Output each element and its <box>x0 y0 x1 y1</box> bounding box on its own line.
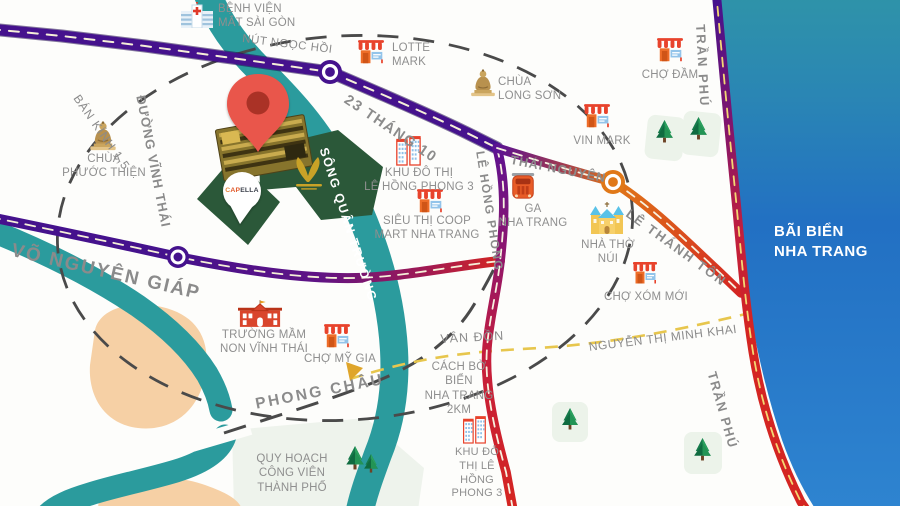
map-canvas <box>0 0 900 506</box>
market-icon <box>323 324 351 355</box>
road-van-don-dashed <box>350 313 750 379</box>
poi-label-cho-xom-moi: CHỢ XÓM MỚI <box>594 290 698 304</box>
poi-label-lotte-mark: LOTTE MARK <box>392 41 430 70</box>
brand-logo-suf: ELLA <box>240 187 259 194</box>
towers-icon <box>461 416 487 449</box>
ocean-label: BÃI BIỂN NHA TRANG <box>774 222 884 263</box>
church-icon <box>589 202 625 239</box>
hospital-icon <box>181 2 213 33</box>
market-icon <box>656 38 684 69</box>
market-icon <box>583 104 611 135</box>
nha-trang-location-map: BỆNH VIỆN MẮT SÀI GÒN LOTTE MARK CHÙA LO… <box>0 0 900 506</box>
brand-logo-mid: AP <box>230 187 240 194</box>
brand-logo-text: CAPELLA <box>219 187 265 194</box>
poi-label-chua-phuoc-thien: CHÙA PHƯỚC THIỆN <box>54 152 154 181</box>
poi-label-khu-do-thi-lhp3: KHU ĐÔ THỊ LÊ HỒNG PHONG 3 <box>364 166 474 195</box>
buddha-icon <box>469 69 497 102</box>
market-icon <box>357 40 385 71</box>
poi-label-cho-my-gia: CHỢ MỸ GIA <box>300 352 380 366</box>
poi-label-vin-mark: VIN MARK <box>562 134 642 148</box>
poi-label-coop-mart: SIÊU THỊ COOP MART NHA TRANG <box>362 214 492 243</box>
poi-label-chua-long-son: CHÙA LONG SƠN <box>498 75 561 104</box>
poi-label-cach-bo-bien: CÁCH BỜ BIỂN NHA TRANG 2KM <box>420 360 498 418</box>
poi-label-benh-vien: BỆNH VIỆN MẮT SÀI GÒN <box>218 2 295 31</box>
poi-label-nha-tho-nui: NHÀ THỜ NÚI <box>580 238 636 267</box>
poi-label-khu-do-thi-lhp3-south: KHU ĐÔ THỊ LÊ HỒNG PHONG 3 <box>446 446 508 501</box>
poi-label-ga-nha-trang: GA NHA TRANG <box>498 202 568 231</box>
poi-label-quy-hoach: QUY HOẠCH CÔNG VIÊN THÀNH PHỐ <box>238 452 346 495</box>
